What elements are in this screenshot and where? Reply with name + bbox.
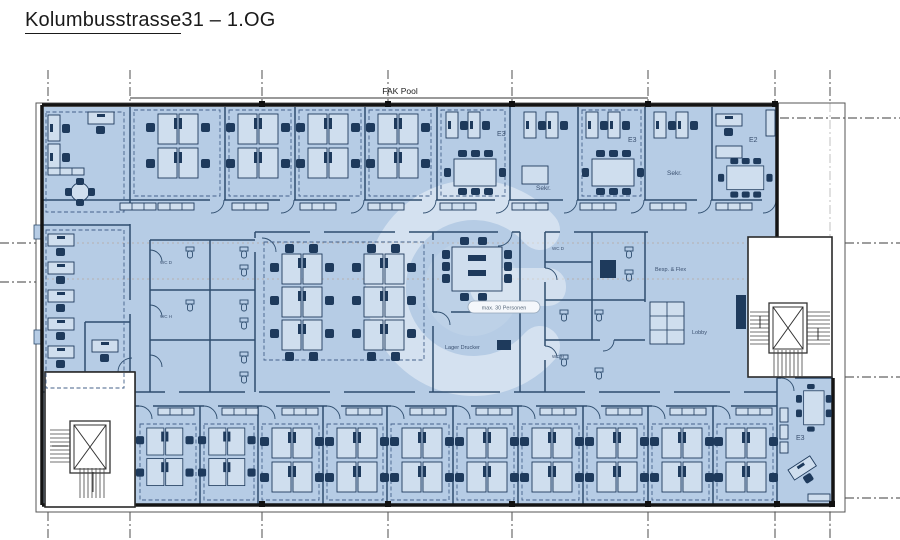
- room-label-e2: E2: [749, 137, 758, 144]
- floorplan-drawing: FAK Pool: [0, 0, 900, 540]
- room-label-bespr: Besp. & Flex: [655, 267, 686, 273]
- floorplan-page: Kolumbusstrasse 31 – 1.OG: [0, 0, 900, 540]
- printer: [497, 340, 511, 350]
- capacity-note-label: max. 30 Personen: [482, 306, 527, 312]
- room-label-sekr-1: Sekr.: [536, 185, 551, 192]
- stairwell-left: [45, 372, 135, 507]
- fak-pool-dimension: FAK Pool: [130, 86, 648, 98]
- shaft: [600, 260, 616, 278]
- room-label-e3-top-1: E3: [497, 131, 506, 138]
- room-label-sekr-2: Sekr.: [667, 170, 682, 177]
- room-label-lager: Lager Drucker: [445, 345, 480, 351]
- room-label-e3-top-2: E3: [628, 137, 637, 144]
- capacity-note: max. 30 Personen: [468, 301, 540, 313]
- room-label-wc-d-left: WC D: [160, 260, 173, 265]
- room-label-wc-h-left: WC H: [160, 314, 172, 319]
- room-label-wc-d-right: WC D: [552, 246, 565, 251]
- fak-pool-label: FAK Pool: [382, 86, 418, 96]
- room-label-lobby: Lobby: [692, 330, 707, 336]
- room-label-wc-h-right: WC H: [552, 354, 564, 359]
- reception-counter: [650, 302, 684, 344]
- room-label-e3-bottom: E3: [796, 435, 805, 442]
- stairwell-right: [736, 237, 832, 377]
